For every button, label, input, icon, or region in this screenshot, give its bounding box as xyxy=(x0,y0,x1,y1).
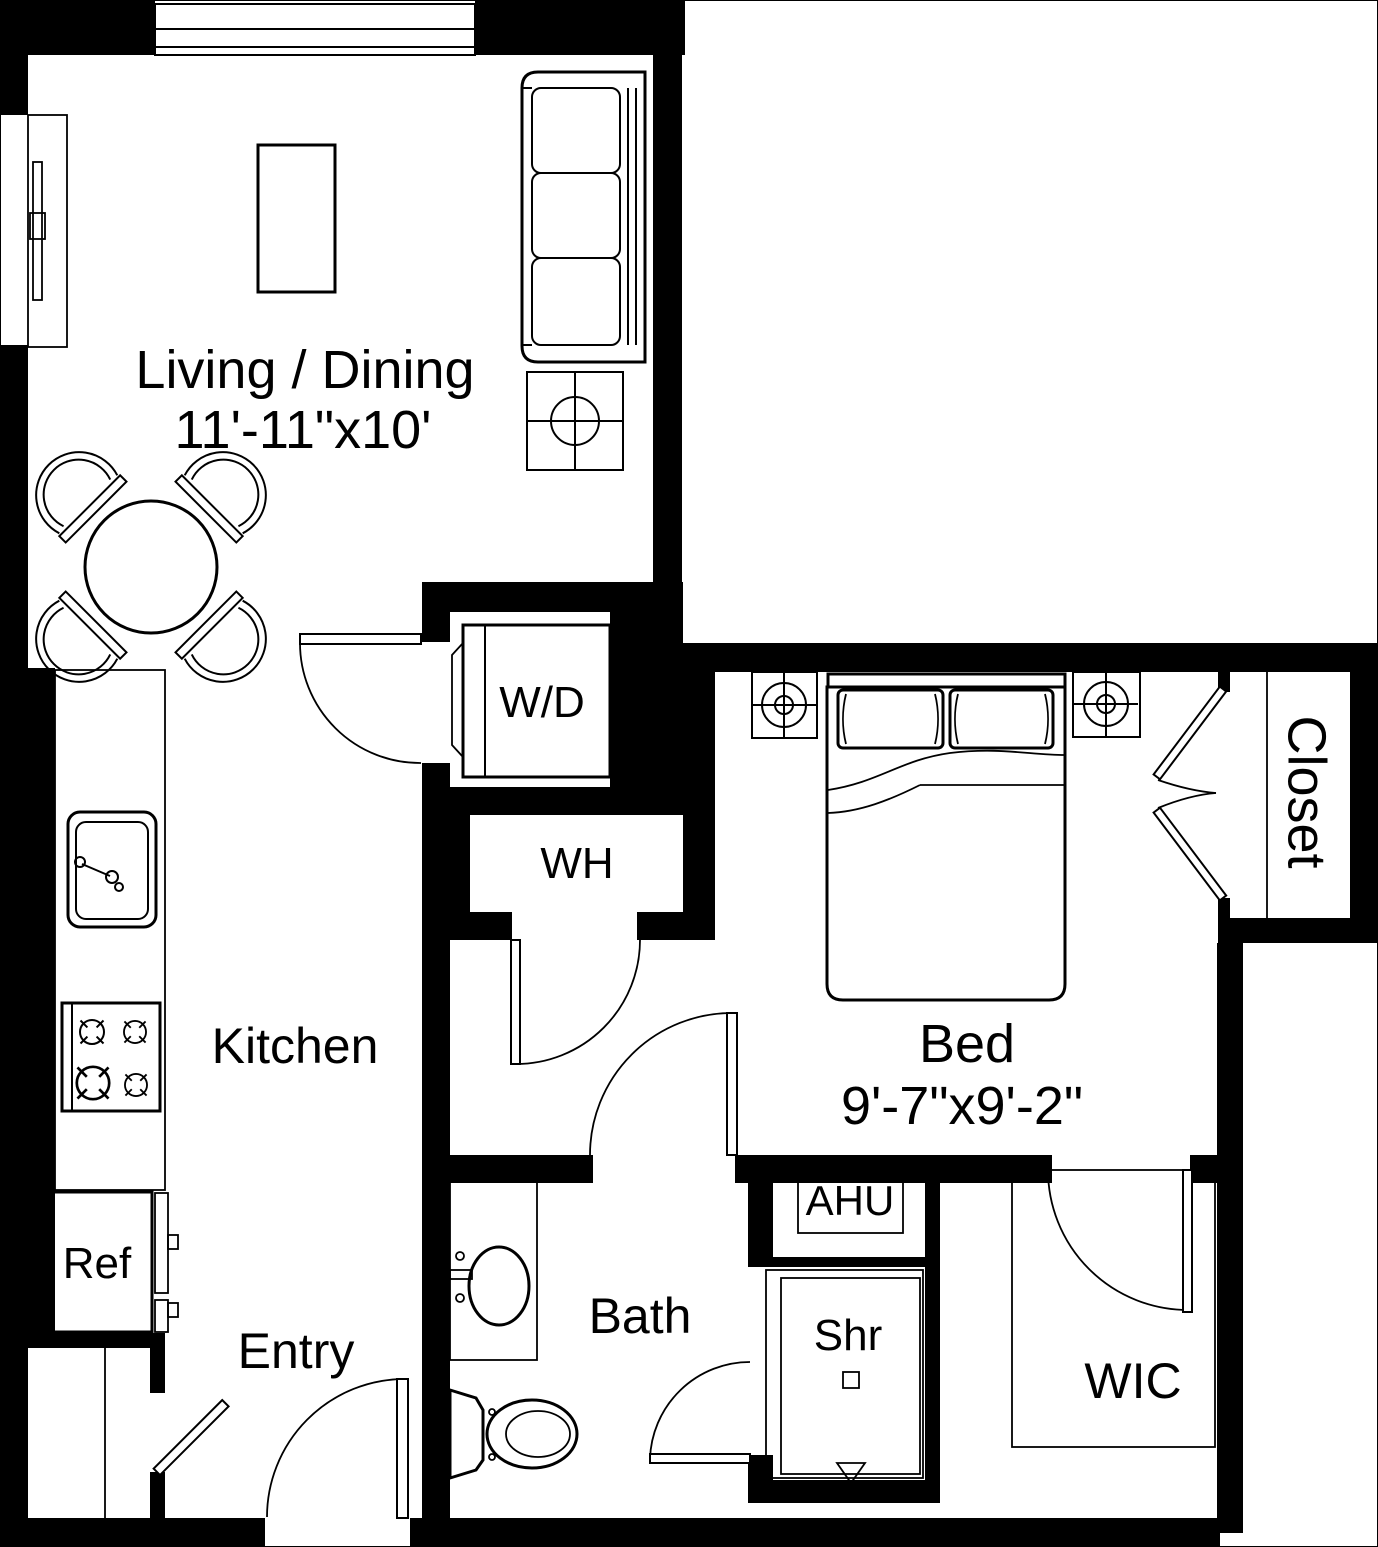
water-heater-door xyxy=(511,940,640,1064)
closet-label: Closet xyxy=(1277,715,1337,868)
toilet xyxy=(450,1390,577,1478)
closet-bifold-door xyxy=(1154,687,1227,901)
kitchen-sink xyxy=(68,812,156,927)
entry-door xyxy=(267,1379,408,1518)
water-heater-label: WH xyxy=(540,839,613,888)
top-window xyxy=(155,4,475,55)
dining-chair xyxy=(176,592,284,700)
bed-label: Bed xyxy=(919,1014,1015,1074)
shower-stall xyxy=(766,1270,923,1483)
nightstand-left xyxy=(752,672,817,738)
living-dining-dimensions: 11'-11"x10' xyxy=(175,400,432,460)
kitchen-label: Kitchen xyxy=(212,1018,379,1074)
washer-dryer-label: W/D xyxy=(499,678,585,727)
shower-label: Shr xyxy=(814,1311,882,1360)
wic-label: WIC xyxy=(1084,1353,1181,1409)
entry-label: Entry xyxy=(238,1323,355,1379)
living-dining-label: Living / Dining xyxy=(135,340,474,400)
bath-label: Bath xyxy=(589,1288,692,1344)
bath-door xyxy=(590,1013,737,1155)
coat-closet xyxy=(105,1348,229,1518)
shower-door xyxy=(650,1362,750,1463)
stove xyxy=(62,1003,160,1111)
dining-chair xyxy=(18,434,126,542)
bed-dimensions: 9'-7"x9'-2" xyxy=(841,1076,1083,1136)
dining-table xyxy=(85,501,217,633)
bath-vanity xyxy=(450,1170,537,1360)
floorplan-svg: Living / Dining 11'-11"x10' Bed 9'-7"x9'… xyxy=(0,0,1378,1547)
air-handler-label: AHU xyxy=(806,1177,895,1224)
coffee-table xyxy=(258,145,335,292)
side-table-lamp xyxy=(527,372,623,470)
refrigerator-label: Ref xyxy=(63,1239,132,1288)
wic-door xyxy=(1048,1170,1192,1312)
living-hall-door xyxy=(300,634,421,763)
nightstand-right xyxy=(1073,672,1140,737)
sofa xyxy=(522,72,645,362)
tv-console xyxy=(28,115,67,347)
bed-furniture xyxy=(827,674,1065,1000)
floorplan-page: Living / Dining 11'-11"x10' Bed 9'-7"x9'… xyxy=(0,0,1378,1547)
